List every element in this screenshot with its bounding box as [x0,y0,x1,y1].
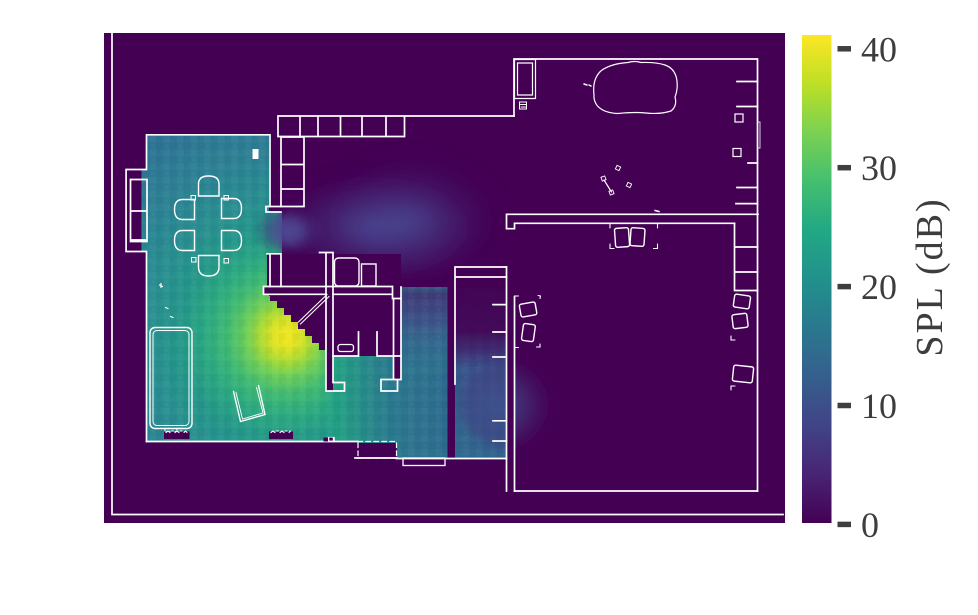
svg-text:30: 30 [861,148,897,188]
svg-text:0: 0 [861,505,879,545]
svg-text:10: 10 [861,386,897,426]
svg-text:SPL (dB): SPL (dB) [909,197,951,356]
svg-text:40: 40 [861,29,897,69]
svg-text:20: 20 [861,267,897,307]
